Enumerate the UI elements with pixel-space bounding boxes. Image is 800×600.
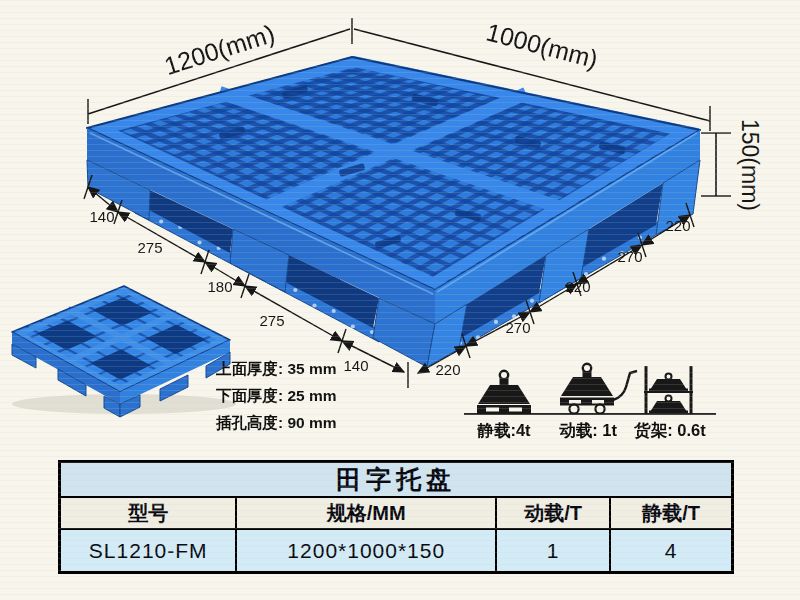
dim-label-left-seg: 140 (343, 357, 368, 374)
static-load-icon (477, 371, 531, 414)
rack-load-label: 货架: 0.6t (633, 421, 706, 440)
note-top-thickness: 上面厚度: 35 mm (216, 355, 337, 382)
dim-tick (241, 274, 249, 298)
dim-tick (201, 250, 209, 274)
dim-label-left-seg: 140 (89, 208, 114, 225)
table-grid: 型号 规格/MM 动载/T 静载/T SL1210-FM 1200*1000*1… (61, 498, 731, 571)
dim-label-right-seg: 220 (665, 217, 690, 234)
dim-label-right-seg: 220 (435, 361, 460, 378)
dynamic-load-icon (560, 364, 637, 414)
dim-label-left-seg: 180 (207, 278, 232, 295)
col-header-spec: 规格/MM (237, 498, 495, 528)
dim-label-left-seg: 275 (137, 239, 162, 256)
spec-table: 田字托盘 型号 规格/MM 动载/T 静载/T SL1210-FM 1200*1… (58, 460, 734, 574)
dim-label-right-seg: 220 (565, 278, 590, 295)
thickness-notes: 上面厚度: 35 mm 下面厚度: 25 mm 插孔高度: 90 mm (216, 355, 337, 436)
note-bottom-thickness: 下面厚度: 25 mm (216, 382, 337, 409)
col-header-dynamic-load: 动载/T (497, 498, 609, 528)
dim-label-right-seg: 270 (505, 319, 530, 336)
note-fork-hole-height: 插孔高度: 90 mm (216, 409, 337, 436)
small-pallet-illustration (12, 286, 236, 417)
dim-label-right-seg: 270 (617, 248, 642, 265)
dim-label-1000: 1000(mm) (484, 17, 601, 73)
rack-load-icon (644, 366, 693, 414)
pallet-product-sheet: 1200(mm) 1000(mm) 150(mm) 140 275 180 27… (0, 0, 800, 600)
col-header-model: 型号 (61, 498, 235, 528)
load-rating-icons: 静载:4t 动载: 1t 货架: 0.6t (464, 364, 716, 440)
dim-label-150: 150(mm) (737, 119, 763, 211)
cell-spec: 1200*1000*150 (237, 530, 495, 571)
col-header-static-load: 静载/T (611, 498, 731, 528)
dynamic-load-label: 动载: 1t (559, 421, 617, 439)
cell-dynamic-load: 1 (497, 530, 609, 571)
dim-tick (338, 329, 346, 353)
table-title: 田字托盘 (61, 463, 731, 496)
cell-static-load: 4 (611, 530, 731, 571)
dim-label-left-seg: 275 (259, 312, 284, 329)
static-load-label: 静载:4t (476, 421, 531, 439)
cell-model: SL1210-FM (61, 530, 235, 571)
